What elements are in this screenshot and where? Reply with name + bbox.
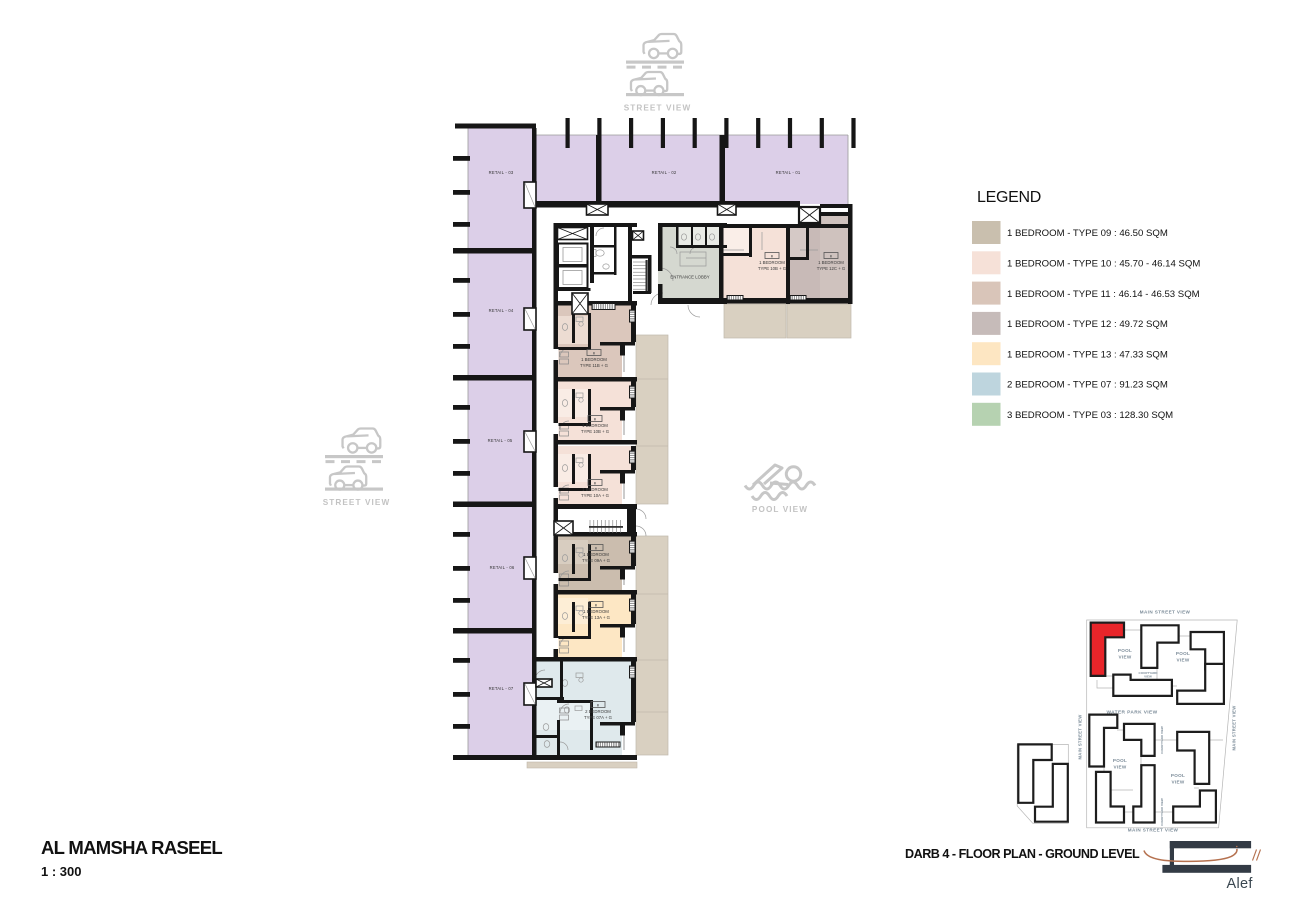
svg-text:VIEW: VIEW	[1172, 780, 1185, 785]
svg-text:VIEW: VIEW	[1144, 675, 1152, 679]
svg-text:COURTYARD VIEW: COURTYARD VIEW	[1160, 726, 1164, 754]
svg-text:1 BEDROOM - TYPE 09 : 46.50 SQ: 1 BEDROOM - TYPE 09 : 46.50 SQM	[1007, 228, 1168, 239]
svg-text:2 BEDROOM: 2 BEDROOM	[585, 709, 611, 714]
svg-text:POOL: POOL	[1113, 758, 1127, 763]
svg-text:TYPE 09A + G: TYPE 09A + G	[582, 558, 611, 563]
svg-text:VIEW: VIEW	[1177, 658, 1190, 663]
svg-text:1 BEDROOM - TYPE 12 : 49.72 SQ: 1 BEDROOM - TYPE 12 : 49.72 SQM	[1007, 319, 1168, 330]
svg-text:POOL: POOL	[1171, 773, 1185, 778]
svg-text:TYPE 13A + G: TYPE 13A + G	[582, 615, 611, 620]
svg-text:DARB 4 - FLOOR PLAN - GROUND L: DARB 4 - FLOOR PLAN - GROUND LEVEL	[905, 847, 1140, 861]
svg-text:POOL: POOL	[1118, 648, 1132, 653]
svg-text:▮: ▮	[594, 417, 596, 421]
svg-text:TYPE 10B + G: TYPE 10B + G	[758, 266, 787, 271]
svg-text:1 BEDROOM: 1 BEDROOM	[582, 423, 608, 428]
svg-text:1 : 300: 1 : 300	[41, 864, 81, 879]
svg-text:▮: ▮	[593, 351, 595, 355]
svg-text:RETAIL - 01: RETAIL - 01	[776, 170, 801, 175]
svg-text:VIEW: VIEW	[1119, 655, 1132, 660]
svg-text:3 BEDROOM - TYPE 03 : 128.30 S: 3 BEDROOM - TYPE 03 : 128.30 SQM	[1007, 410, 1173, 421]
svg-text:1 BEDROOM: 1 BEDROOM	[759, 260, 785, 265]
svg-text:MAIN STREET VIEW: MAIN STREET VIEW	[1232, 705, 1237, 750]
svg-text:LEGEND: LEGEND	[977, 189, 1041, 206]
svg-text:TYPE 10B + G: TYPE 10B + G	[581, 429, 610, 434]
svg-text:TYPE 12C + G: TYPE 12C + G	[817, 266, 846, 271]
svg-text:MAIN STREET VIEW: MAIN STREET VIEW	[1128, 828, 1179, 833]
svg-text:ENTRANCE LOBBY: ENTRANCE LOBBY	[670, 275, 709, 280]
svg-text:RETAIL - 04: RETAIL - 04	[489, 308, 514, 313]
svg-text:MAIN STREET VIEW: MAIN STREET VIEW	[1140, 610, 1191, 615]
svg-text:▮: ▮	[771, 254, 773, 258]
svg-text:1 BEDROOM: 1 BEDROOM	[583, 552, 609, 557]
svg-text:TYPE 11B + G: TYPE 11B + G	[580, 363, 609, 368]
svg-text:▮: ▮	[595, 546, 597, 550]
svg-text:Alef: Alef	[1227, 876, 1254, 892]
svg-text:POOL VIEW: POOL VIEW	[752, 505, 808, 514]
svg-text:POOL: POOL	[1176, 651, 1190, 656]
svg-text:COURTYARD VIEW: COURTYARD VIEW	[1160, 798, 1164, 826]
svg-text:▮: ▮	[830, 254, 832, 258]
svg-text:1 BEDROOM - TYPE 11 : 46.14 -: 1 BEDROOM - TYPE 11 : 46.14 - 46.53 SQM	[1007, 289, 1200, 300]
svg-text:WATER PARK VIEW: WATER PARK VIEW	[1106, 710, 1157, 716]
svg-text:1 BEDROOM - TYPE 10 : 45.70 -: 1 BEDROOM - TYPE 10 : 45.70 - 46.14 SQM	[1007, 259, 1200, 270]
svg-text:TYPE 10A + G: TYPE 10A + G	[581, 493, 610, 498]
svg-text:MAIN STREET VIEW: MAIN STREET VIEW	[1078, 714, 1083, 759]
svg-text:1 BEDROOM: 1 BEDROOM	[582, 487, 608, 492]
svg-text:STREET VIEW: STREET VIEW	[624, 104, 692, 113]
svg-text:1 BEDROOM - TYPE 13 : 47.33 SQ: 1 BEDROOM - TYPE 13 : 47.33 SQM	[1007, 349, 1168, 360]
svg-text:TYPE 07A + G: TYPE 07A + G	[584, 715, 613, 720]
svg-text:▮: ▮	[597, 703, 599, 707]
svg-text:RETAIL - 03: RETAIL - 03	[489, 170, 514, 175]
svg-text:STREET VIEW: STREET VIEW	[323, 498, 391, 507]
svg-text:2 BEDROOM - TYPE 07 : 91.23 SQ: 2 BEDROOM - TYPE 07 : 91.23 SQM	[1007, 380, 1168, 391]
svg-text:RETAIL - 07: RETAIL - 07	[489, 686, 514, 691]
svg-text:RETAIL - 06: RETAIL - 06	[490, 565, 515, 570]
svg-text:VIEW: VIEW	[1114, 765, 1127, 770]
svg-text:RETAIL - 05: RETAIL - 05	[488, 438, 513, 443]
svg-text:RETAIL - 02: RETAIL - 02	[652, 170, 677, 175]
svg-text:▮: ▮	[594, 481, 596, 485]
svg-text:1 BEDROOM: 1 BEDROOM	[818, 260, 844, 265]
svg-text:▮: ▮	[595, 603, 597, 607]
svg-text:AL MAMSHA RASEEL: AL MAMSHA RASEEL	[41, 837, 222, 858]
svg-text:1 BEDROOM: 1 BEDROOM	[581, 357, 607, 362]
svg-text:1 BEDROOM: 1 BEDROOM	[583, 609, 609, 614]
